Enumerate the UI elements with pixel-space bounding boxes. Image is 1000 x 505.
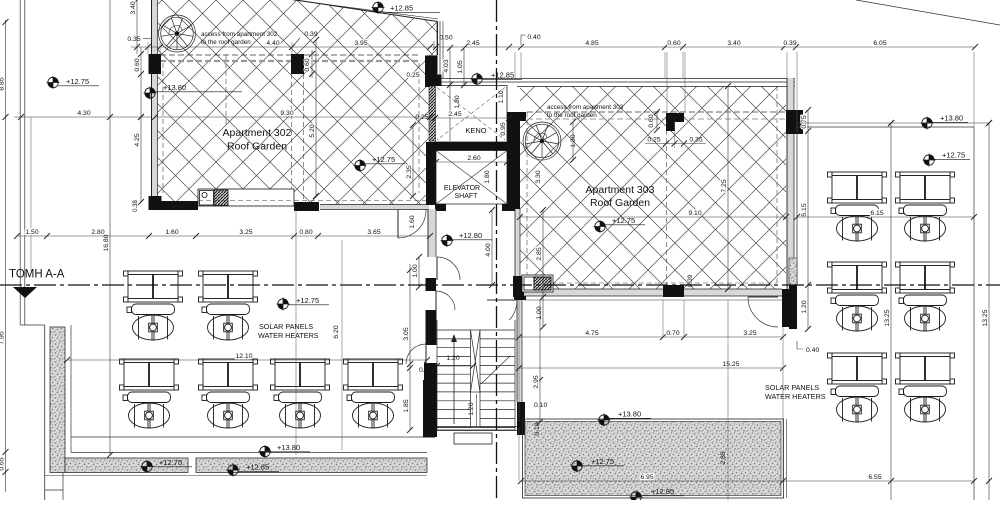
svg-text:6.05: 6.05 <box>873 40 886 47</box>
svg-text:SHAFT: SHAFT <box>455 193 479 200</box>
svg-text:0.10: 0.10 <box>534 402 547 409</box>
svg-text:6.20: 6.20 <box>333 325 340 338</box>
svg-text:access from apartment 302: access from apartment 302 <box>201 31 278 38</box>
svg-text:2.80: 2.80 <box>91 229 104 236</box>
svg-text:1.20: 1.20 <box>801 300 808 313</box>
svg-text:1.80: 1.80 <box>454 95 461 108</box>
svg-text:0.39: 0.39 <box>304 31 317 38</box>
svg-text:0.75: 0.75 <box>801 115 808 128</box>
svg-text:4.40: 4.40 <box>266 40 279 47</box>
svg-text:+13.80: +13.80 <box>277 443 300 452</box>
svg-text:+13.80: +13.80 <box>940 114 963 123</box>
svg-text:+12.75: +12.75 <box>612 216 635 225</box>
svg-text:3.95: 3.95 <box>354 40 367 47</box>
svg-text:4.25: 4.25 <box>134 133 141 146</box>
svg-text:access from apartment 303: access from apartment 303 <box>547 104 624 111</box>
svg-text:0.40: 0.40 <box>527 34 540 41</box>
svg-text:+12.75: +12.75 <box>591 457 614 466</box>
svg-text:SOLAR PANELS: SOLAR PANELS <box>259 322 313 331</box>
svg-text:7.25: 7.25 <box>721 179 728 192</box>
svg-text:Apartment 302: Apartment 302 <box>223 127 292 139</box>
svg-text:16.80: 16.80 <box>103 234 110 251</box>
svg-text:Apartment 303: Apartment 303 <box>586 184 655 196</box>
svg-text:3.40: 3.40 <box>130 1 137 14</box>
svg-text:0.95: 0.95 <box>500 122 507 135</box>
svg-text:+12.80: +12.80 <box>459 231 482 240</box>
svg-text:1.50: 1.50 <box>25 229 38 236</box>
svg-text:+12.75: +12.75 <box>296 296 319 305</box>
svg-text:2.85: 2.85 <box>720 451 727 464</box>
svg-text:9.10: 9.10 <box>688 210 701 217</box>
svg-text:KENO: KENO <box>465 126 486 135</box>
svg-text:6.15: 6.15 <box>870 210 883 217</box>
svg-text:TOMH A-A: TOMH A-A <box>9 269 65 281</box>
svg-text:0.65: 0.65 <box>0 457 5 470</box>
svg-text:SOLAR PANELS: SOLAR PANELS <box>765 383 819 392</box>
svg-text:0.40: 0.40 <box>806 347 819 354</box>
svg-text:0.25: 0.25 <box>647 137 660 144</box>
svg-text:4.00: 4.00 <box>485 243 492 256</box>
svg-text:1.00: 1.00 <box>536 306 543 319</box>
svg-text:6.55: 6.55 <box>868 474 881 481</box>
svg-text:2.95: 2.95 <box>533 375 540 388</box>
svg-text:2.45: 2.45 <box>466 40 479 47</box>
svg-text:6.95: 6.95 <box>640 474 653 481</box>
svg-text:to the roof garden: to the roof garden <box>201 39 251 46</box>
svg-text:0.25: 0.25 <box>406 72 419 79</box>
svg-text:3.05: 3.05 <box>403 327 410 340</box>
svg-text:4.03: 4.03 <box>443 59 450 72</box>
svg-text:+12.75: +12.75 <box>159 458 182 467</box>
svg-text:0.60: 0.60 <box>134 58 141 71</box>
svg-text:3.25: 3.25 <box>743 330 756 337</box>
svg-text:1.60: 1.60 <box>409 215 416 228</box>
svg-text:Roof Garden: Roof Garden <box>590 197 650 209</box>
svg-text:to the roof garden: to the roof garden <box>547 112 597 119</box>
svg-text:Roof Garden: Roof Garden <box>227 141 287 153</box>
svg-text:1.10: 1.10 <box>498 90 505 103</box>
svg-text:1.80: 1.80 <box>484 170 491 183</box>
svg-text:+12.85: +12.85 <box>390 4 413 13</box>
svg-text:+12.75: +12.75 <box>372 155 395 164</box>
svg-text:+13.80: +13.80 <box>163 83 186 92</box>
svg-text:0.60: 0.60 <box>667 40 680 47</box>
svg-text:12.10: 12.10 <box>235 353 252 360</box>
svg-text:0.39: 0.39 <box>783 40 796 47</box>
svg-text:WATER HEATERS: WATER HEATERS <box>765 392 826 401</box>
svg-text:+12.85: +12.85 <box>651 487 674 496</box>
svg-text:0.80: 0.80 <box>299 229 312 236</box>
svg-text:0.50: 0.50 <box>439 35 452 42</box>
svg-text:2.45: 2.45 <box>448 111 461 118</box>
svg-text:1.60: 1.60 <box>165 229 178 236</box>
svg-text:0.60: 0.60 <box>648 114 655 127</box>
svg-text:4.85: 4.85 <box>585 40 598 47</box>
svg-text:7.95: 7.95 <box>0 331 5 344</box>
svg-text:1.20: 1.20 <box>446 355 459 362</box>
svg-text:8.85: 8.85 <box>0 77 5 90</box>
svg-text:3.40: 3.40 <box>727 40 740 47</box>
svg-text:+12.75: +12.75 <box>66 77 89 86</box>
svg-text:4.30: 4.30 <box>77 110 90 117</box>
svg-text:0.38: 0.38 <box>133 200 139 212</box>
svg-text:2.85: 2.85 <box>536 247 543 260</box>
svg-text:4.75: 4.75 <box>585 330 598 337</box>
svg-text:0.10: 0.10 <box>419 367 432 374</box>
svg-text:0.35: 0.35 <box>689 137 702 144</box>
svg-text:0.39: 0.39 <box>687 274 694 287</box>
svg-text:1.20: 1.20 <box>468 402 475 415</box>
svg-text:WATER HEATERS: WATER HEATERS <box>258 331 319 340</box>
svg-text:3.25: 3.25 <box>239 229 252 236</box>
svg-text:1.05: 1.05 <box>457 60 464 73</box>
svg-text:0.35: 0.35 <box>127 36 140 43</box>
svg-text:15.25: 15.25 <box>722 361 739 368</box>
svg-text:1.00: 1.00 <box>412 264 419 277</box>
svg-text:+13.80: +13.80 <box>618 410 641 419</box>
svg-text:2.35: 2.35 <box>406 165 413 178</box>
svg-text:ELEVATOR: ELEVATOR <box>444 185 480 192</box>
svg-text:0.60: 0.60 <box>304 58 311 71</box>
svg-text:3.30: 3.30 <box>535 170 542 183</box>
svg-text:13.25: 13.25 <box>884 309 891 326</box>
svg-text:1.30: 1.30 <box>570 134 577 147</box>
svg-text:9.30: 9.30 <box>280 110 293 117</box>
svg-text:0.25: 0.25 <box>415 114 428 121</box>
svg-text:0.70: 0.70 <box>666 330 679 337</box>
svg-text:5.15: 5.15 <box>801 203 808 216</box>
svg-text:2.60: 2.60 <box>467 155 480 162</box>
svg-text:+12.75: +12.75 <box>942 151 965 160</box>
svg-text:5.20: 5.20 <box>309 124 316 137</box>
svg-text:1.85: 1.85 <box>403 399 410 412</box>
svg-text:3.65: 3.65 <box>367 229 380 236</box>
svg-text:+12.85: +12.85 <box>246 463 269 472</box>
svg-text:13.25: 13.25 <box>982 309 989 326</box>
